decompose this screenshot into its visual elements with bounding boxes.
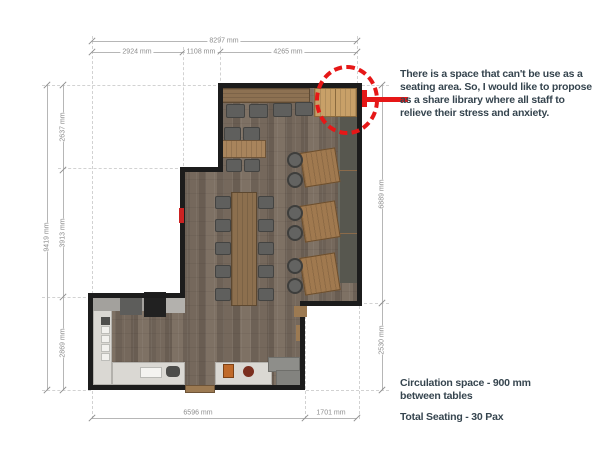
extension-line xyxy=(364,303,389,304)
dining-chair xyxy=(215,219,231,232)
wall-left-mid xyxy=(180,167,185,298)
kitchen-shelf-unit xyxy=(101,335,110,343)
dining-chair xyxy=(215,265,231,278)
dining-table xyxy=(220,140,266,158)
pot xyxy=(243,366,254,377)
wall-left-lower xyxy=(88,293,93,390)
extension-line xyxy=(42,390,91,391)
appliance xyxy=(120,296,142,315)
dim-label: 3913 mm xyxy=(59,218,68,247)
round-stool xyxy=(287,258,303,274)
dining-chair xyxy=(258,265,274,278)
serving-tray xyxy=(140,367,162,378)
circulation-note: Circulation space - 900 mm between table… xyxy=(400,377,570,403)
dim-label: 2530 mm xyxy=(378,325,387,354)
extension-line xyxy=(42,297,91,298)
extension-line xyxy=(306,390,389,391)
wall-left-upper xyxy=(218,83,223,172)
dining-chair xyxy=(215,242,231,255)
dining-chair xyxy=(243,127,260,141)
kitchen-shelf-unit xyxy=(101,326,110,334)
dim-label: 2637 mm xyxy=(59,112,68,141)
communal-table xyxy=(231,192,257,306)
bar-stool xyxy=(295,102,313,116)
coffee-machine xyxy=(223,364,234,378)
extension-line xyxy=(58,168,183,169)
bar-counter xyxy=(222,88,310,103)
dim-label: 1701 mm xyxy=(314,410,347,417)
wall-step-right xyxy=(300,301,362,306)
kitchen-shelf-unit xyxy=(101,353,110,361)
booth-bench-divider xyxy=(338,170,357,171)
dim-label: 6596 mm xyxy=(181,410,214,417)
dimension-line-bottom xyxy=(92,418,357,419)
wall-shelf xyxy=(294,306,307,317)
dining-chair xyxy=(215,196,231,209)
dim-label: 2869 mm xyxy=(59,328,68,357)
bar-stool xyxy=(249,104,268,118)
round-stool xyxy=(287,225,303,241)
dim-label: 2924 mm xyxy=(120,49,153,56)
booth-table xyxy=(299,200,340,242)
extension-line xyxy=(305,306,306,419)
door-marker xyxy=(179,208,184,223)
dining-chair xyxy=(224,127,241,141)
library-proposal-note: There is a space that can't be use as a … xyxy=(400,68,592,120)
booth-bench xyxy=(338,117,357,283)
wall-step-left xyxy=(180,167,223,172)
extension-line xyxy=(42,85,221,86)
dining-chair xyxy=(258,219,274,232)
total-seating-note: Total Seating - 30 Pax xyxy=(400,411,580,424)
dim-label-left-total: 9419 mm xyxy=(43,222,52,251)
bar-stool xyxy=(226,104,245,118)
round-stool xyxy=(287,278,303,294)
dim-label: 4265 mm xyxy=(271,49,304,56)
bar-stool xyxy=(273,103,292,117)
booth-table xyxy=(299,252,341,295)
extension-line xyxy=(359,306,360,419)
dining-chair xyxy=(258,196,274,209)
dining-chair xyxy=(258,242,274,255)
dining-chair xyxy=(215,288,231,301)
dim-label: 6889 mm xyxy=(378,179,387,208)
kitchen-shelf-unit xyxy=(101,344,110,352)
extension-line xyxy=(183,47,184,171)
booth-table xyxy=(299,147,340,187)
dining-chair xyxy=(244,159,260,172)
pot xyxy=(166,366,180,377)
dining-chair xyxy=(226,159,242,172)
annotation-arrow-cap xyxy=(362,90,367,107)
wall-kitchen-top xyxy=(88,293,185,298)
floor-plan-sheet: 8297 mm 2924 mm 1108 mm 4265 mm 9419 mm … xyxy=(0,0,600,450)
dim-label-top-total: 8297 mm xyxy=(207,38,240,45)
dim-label: 1108 mm xyxy=(185,49,218,56)
booth-bench-divider xyxy=(338,233,357,234)
round-stool xyxy=(287,205,303,221)
appliance xyxy=(166,297,185,313)
kitchen-shelf-unit xyxy=(101,317,110,325)
entrance-door xyxy=(185,385,215,393)
round-stool xyxy=(287,172,303,188)
round-stool xyxy=(287,152,303,168)
dining-chair xyxy=(258,288,274,301)
